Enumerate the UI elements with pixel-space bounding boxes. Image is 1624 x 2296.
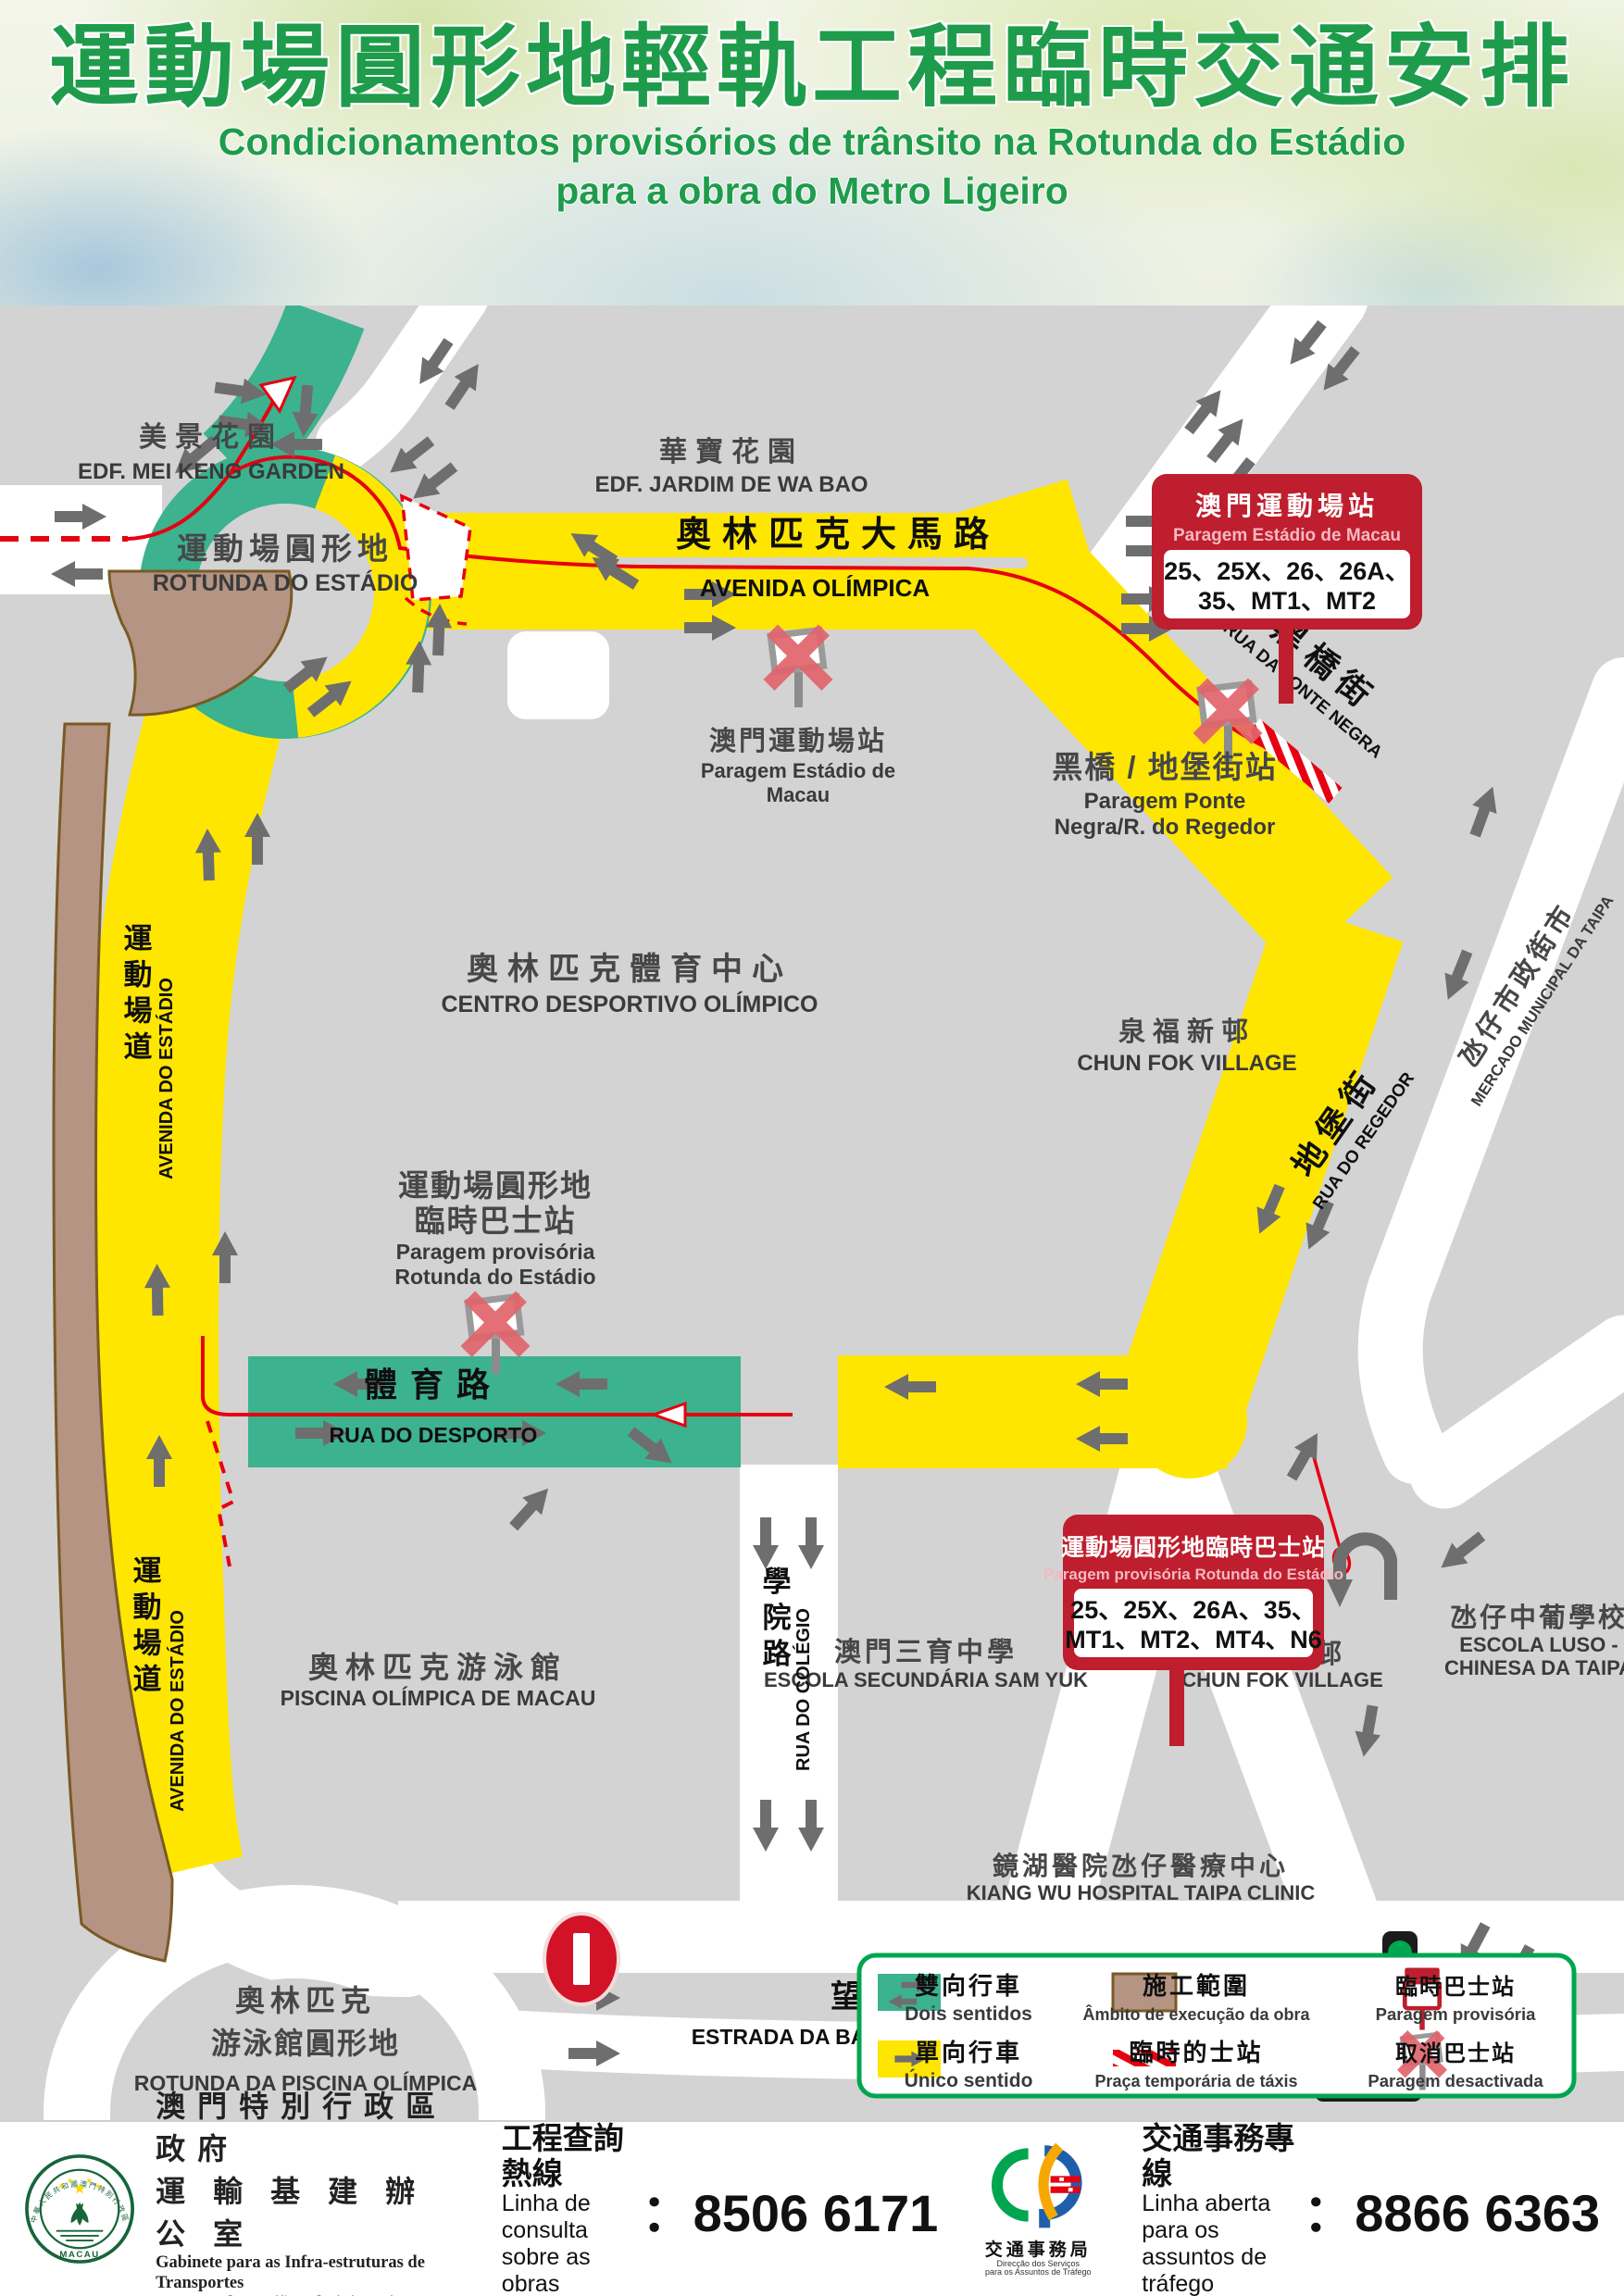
header: 運動場圓形地輕軌工程臨時交通安排 Condicionamentos provis… [0, 0, 1624, 306]
legend-construction-pt: Âmbito de execução da obra [1082, 2004, 1310, 2024]
label-chun-fok-north-en: CHUN FOK VILLAGE [1077, 1051, 1296, 1076]
svg-text:★: ★ [86, 2177, 93, 2185]
label-av-estadio2-pt: AVENIDA DO ESTÁDIO [167, 1610, 188, 1812]
gov-name-zh-1: 澳門特別行政區政府 [156, 2083, 454, 2168]
works-hotline-block: 工程查詢熱線 Linha de consulta sobre as obras [502, 2121, 638, 2296]
legend-one-way-zh: 單向行車 [915, 2039, 1022, 2066]
label-temp-stop-zh1: 運動場圓形地 [398, 1168, 593, 1203]
svg-text:★: ★ [67, 2177, 73, 2185]
traffic-hotline-zh: 交通事務專線 [1142, 2121, 1299, 2191]
sign-rotunda-routes-1: 25、25X、26A、35、 [1070, 1596, 1317, 1624]
label-mei-keng-zh: 美景花園 [139, 421, 283, 453]
page-subtitle-line1: Condicionamentos provisórios de trânsito… [0, 120, 1624, 164]
legend-temp-stop-zh: 臨時巴士站 [1395, 1974, 1516, 2000]
label-stop-ponte-negra-zh: 黑橋 / 地堡街站 [1052, 750, 1278, 784]
label-av-olimpica-zh: 奧林匹克大馬路 [676, 516, 1000, 555]
label-desporto-pt: RUA DO DESPORTO [330, 1423, 538, 1447]
label-stop-ponte-negra-pt1: Paragem Ponte [1084, 789, 1246, 814]
label-temp-stop-pt1: Paragem provisória [396, 1240, 595, 1264]
sign-rotunda-title-pt: Paragem provisória Rotunda do Estádio [1043, 1566, 1343, 1583]
dsat-logo [982, 2140, 1093, 2237]
label-kiang-wu-zh: 鏡湖醫院氹仔醫療中心 [993, 1851, 1289, 1880]
label-centro-pt: CENTRO DESPORTIVO OLÍMPICO [442, 991, 818, 1017]
label-stop-estadio-pt2: Macau [767, 783, 830, 806]
label-av-estadio1-pt: AVENIDA DO ESTÁDIO [156, 978, 177, 1179]
footer: 中華人民共和國澳門特別行政區 ★ ★ ★ ★ ★ MACAU 澳門特別 [0, 2120, 1624, 2296]
sign-estadio-routes-1: 25、25X、26、26A、 [1164, 557, 1410, 585]
works-hotline-phone: ：8506 6171 [642, 2172, 939, 2247]
label-desporto-zh: 體育路 [364, 1366, 503, 1404]
legend-taxi-pt: Praça temporária de táxis [1094, 2072, 1297, 2090]
label-piscina-pt: PISCINA OLÍMPICA DE MACAU [281, 1685, 596, 1710]
label-temp-stop-pt2: Rotunda do Estádio [394, 1265, 595, 1289]
gov-name-zh-2: 運輸基建辦公室 [156, 2168, 454, 2253]
label-av-estadio2-zh: 運動場道 [129, 1555, 162, 1700]
label-wa-bao-zh: 華寶花園 [659, 436, 804, 468]
legend-cancelled-stop-zh: 取消巴士站 [1395, 2041, 1516, 2066]
traffic-hotline-pt-2: assuntos de tráfego [1142, 2244, 1299, 2296]
label-sam-yuk-zh: 澳門三育中學 [834, 1636, 1018, 1667]
works-hotline-pt-2: sobre as obras [502, 2244, 638, 2296]
legend-taxi-zh: 臨時的士站 [1129, 2039, 1263, 2066]
label-centro-zh: 奧林匹克體育中心 [467, 952, 793, 987]
traffic-hotline-phone: ：8866 6363 [1303, 2172, 1600, 2247]
label-colegio-zh: 學院路 [758, 1566, 792, 1675]
label-luso-zh: 氹仔中葡學校 [1450, 1602, 1624, 1633]
works-hotline-pt-1: Linha de consulta [502, 2190, 638, 2244]
macau-government-seal: 中華人民共和國澳門特別行政區 ★ ★ ★ ★ ★ MACAU [24, 2134, 135, 2284]
no-entry-icon [544, 1914, 618, 2004]
dsat-name-zh: 交通事務局 [982, 2241, 1093, 2260]
label-wa-bao-en: EDF. JARDIM DE WA BAO [594, 472, 868, 497]
label-rotunda-estadio-pt: ROTUNDA DO ESTÁDIO [153, 569, 418, 596]
traffic-map: 美景花園 EDF. MEI KENG GARDEN 華寶花園 EDF. JARD… [0, 306, 1624, 2120]
works-hotline-zh: 工程查詢熱線 [502, 2121, 638, 2191]
legend-two-way-zh: 雙向行車 [915, 1972, 1022, 2000]
sign-rotunda-routes-2: MT1、MT2、MT4、N6 [1065, 1626, 1322, 1653]
seal-macau-text: MACAU [59, 2250, 99, 2260]
svg-text:★: ★ [73, 2181, 87, 2198]
legend: 雙向行車 Dois sentidos 單向行車 Único sentido 施工… [859, 1955, 1574, 2096]
legend-two-way-pt: Dois sentidos [905, 2003, 1032, 2025]
page-subtitle-line2: para a obra do Metro Ligeiro [0, 169, 1624, 213]
label-chun-fok-north-zh: 泉福新邨 [1118, 1016, 1255, 1047]
sign-estadio-routes-2: 35、MT1、MT2 [1198, 587, 1376, 615]
traffic-hotline-pt-1: Linha aberta para os [1142, 2190, 1299, 2244]
sign-estadio-title-zh: 澳門運動場站 [1195, 492, 1379, 520]
sign-rotunda-title-zh: 運動場圓形地臨時巴士站 [1061, 1534, 1326, 1561]
label-colegio-pt: RUA DO COLÉGIO [793, 1608, 814, 1771]
label-temp-stop-zh2: 臨時巴士站 [415, 1204, 577, 1238]
label-luso-pt1: ESCOLA LUSO - [1459, 1633, 1618, 1656]
label-av-estadio1-zh: 運動場道 [119, 923, 153, 1067]
legend-cancelled-stop-pt: Paragem desactivada [1368, 2071, 1543, 2090]
traffic-hotline-block: 交通事務專線 Linha aberta para os assuntos de … [1142, 2121, 1299, 2296]
label-chun-fok-south-en: CHUN FOK VILLAGE [1181, 1668, 1383, 1691]
dsat-name-pt-2: para os Assuntos de Tráfego [982, 2268, 1093, 2277]
legend-one-way-pt: Único sentido [905, 2069, 1033, 2091]
svg-text:★: ★ [94, 2182, 101, 2190]
label-luso-pt2: CHINESA DA TAIPA [1444, 1656, 1624, 1679]
label-mei-keng-en: EDF. MEI KENG GARDEN [78, 459, 344, 484]
dsat-logo-block: 交通事務局 Direcção dos Serviços para os Assu… [982, 2140, 1093, 2277]
label-stop-ponte-negra-pt2: Negra/R. do Regedor [1055, 815, 1276, 840]
label-stop-estadio-pt1: Paragem Estádio de [701, 759, 895, 782]
label-piscina-zh: 奧林匹克游泳館 [308, 1651, 568, 1684]
gov-name-pt-1: Gabinete para as Infra-estruturas de Tra… [156, 2253, 454, 2294]
label-kiang-wu-en: KIANG WU HOSPITAL TAIPA CLINIC [967, 1881, 1316, 1904]
label-av-olimpica-pt: AVENIDA OLÍMPICA [700, 574, 931, 602]
legend-construction-zh: 施工範圍 [1143, 1972, 1250, 2000]
label-rotunda-piscina-zh1: 奧林匹克 [235, 1984, 376, 2017]
gov-office-block: 澳門特別行政區政府 運輸基建辦公室 Gabinete para as Infra… [156, 2083, 454, 2296]
label-stop-estadio-zh: 澳門運動場站 [709, 726, 887, 756]
label-rotunda-piscina-zh2: 游泳館圓形地 [211, 2027, 400, 2060]
label-rotunda-estadio-zh: 運動場圓形地 [177, 531, 394, 566]
page-title: 運動場圓形地輕軌工程臨時交通安排 [0, 0, 1624, 115]
traffic-notice-poster: 運動場圓形地輕軌工程臨時交通安排 Condicionamentos provis… [0, 0, 1624, 2296]
svg-text:★: ★ [57, 2182, 64, 2190]
legend-temp-stop-pt: Paragem provisória [1376, 2004, 1536, 2024]
sign-estadio-title-pt: Paragem Estádio de Macau [1173, 526, 1401, 545]
